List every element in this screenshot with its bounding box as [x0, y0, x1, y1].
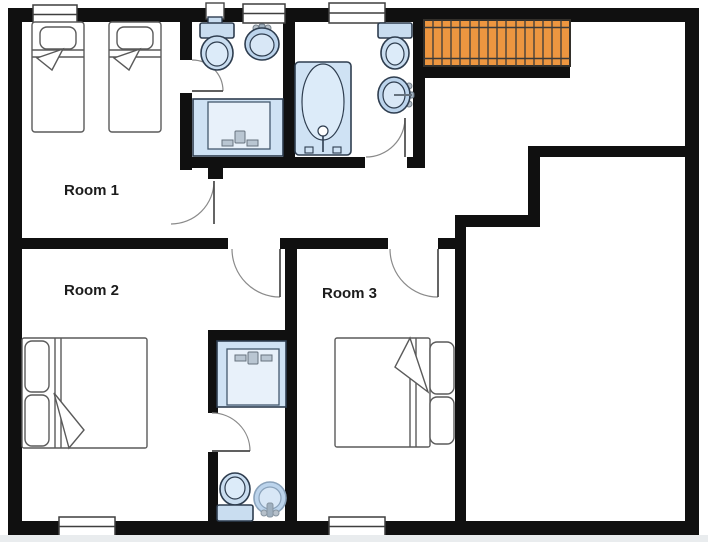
- window-bathroom2-top: [329, 3, 385, 23]
- wall-outer-right: [685, 8, 699, 535]
- vanity-bathroom1-icon: [193, 99, 283, 156]
- room3-label: Room 3: [322, 285, 377, 302]
- wall-rightroom-step-horiz: [455, 215, 540, 227]
- window-bathroom1-top: [243, 4, 285, 23]
- wall-rightroom-top: [528, 146, 699, 157]
- window-room3-bottom: [329, 517, 385, 536]
- sink-smallbath-icon: [254, 482, 286, 517]
- floor-plan-drawing: [0, 0, 708, 542]
- wall-divider-left: [8, 238, 228, 249]
- wall-divider-right: [438, 238, 455, 249]
- toilet-bathroom2-icon: [378, 23, 412, 69]
- wall-room1-right-upper: [180, 22, 192, 60]
- double-bed-room2-icon: [22, 338, 147, 448]
- wall-rightroom-step-vert: [528, 146, 540, 227]
- window-room2-bottom: [59, 517, 115, 536]
- door-bathroom2: [366, 118, 405, 157]
- toilet-smallbath-icon: [217, 473, 253, 521]
- wall-bathrooms-bottom-left: [180, 157, 365, 168]
- wall-stub-hall: [208, 157, 223, 179]
- bathtub-icon: [295, 62, 351, 155]
- door-room1: [171, 181, 214, 224]
- door-room2: [232, 249, 280, 297]
- wall-smallbath-top: [208, 330, 297, 341]
- footer-strip: [0, 535, 708, 542]
- sink-bathroom2-icon: [378, 77, 414, 113]
- floor-plan: Room 1 Room 2 Room 3: [0, 0, 708, 542]
- room1-label: Room 1: [64, 182, 119, 199]
- wall-between-bathrooms: [283, 22, 295, 168]
- room2-label: Room 2: [64, 282, 119, 299]
- wall-outer-left: [8, 8, 22, 535]
- twin-bed-2-icon: [109, 22, 161, 132]
- window-room1-top: [33, 5, 77, 24]
- double-bed-room3-icon: [335, 338, 454, 447]
- twin-bed-1-icon: [32, 22, 84, 132]
- wall-rightroom-left: [455, 215, 466, 535]
- vanity-smallbath-icon: [217, 341, 286, 407]
- sink-bathroom1-icon: [245, 24, 279, 60]
- door-room3: [390, 249, 438, 297]
- stairs-icon: [424, 20, 570, 66]
- wall-smallbath-left-lower: [208, 452, 218, 535]
- door-smallbath: [212, 413, 250, 451]
